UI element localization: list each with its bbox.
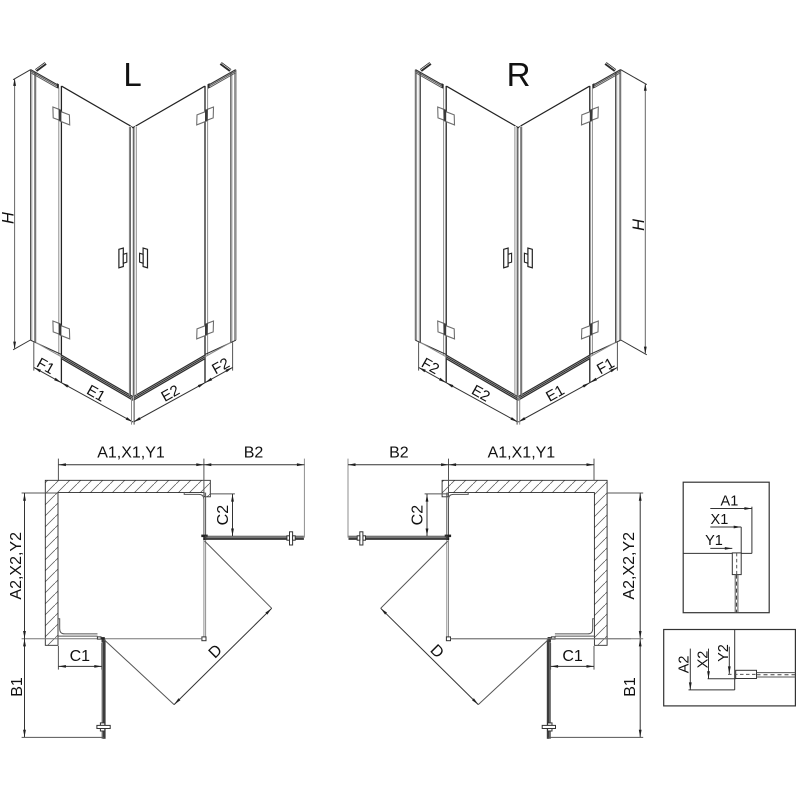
svg-text:A1,X1,Y1: A1,X1,Y1 bbox=[488, 445, 556, 462]
svg-text:A2,X2,Y2: A2,X2,Y2 bbox=[621, 532, 638, 600]
svg-text:A2: A2 bbox=[676, 656, 692, 674]
svg-text:Y1: Y1 bbox=[705, 533, 723, 549]
svg-text:X1: X1 bbox=[711, 512, 729, 528]
svg-text:C1: C1 bbox=[562, 648, 583, 665]
svg-text:R: R bbox=[507, 56, 531, 93]
svg-text:B1: B1 bbox=[9, 677, 26, 697]
svg-text:C2: C2 bbox=[215, 505, 232, 526]
svg-text:X2: X2 bbox=[695, 651, 711, 669]
svg-text:A1,X1,Y1: A1,X1,Y1 bbox=[97, 445, 165, 462]
svg-text:A1: A1 bbox=[721, 493, 739, 509]
svg-text:H: H bbox=[630, 219, 648, 231]
svg-text:C1: C1 bbox=[70, 648, 91, 665]
svg-text:A2,X2,Y2: A2,X2,Y2 bbox=[8, 532, 25, 600]
svg-text:Y2: Y2 bbox=[716, 644, 732, 662]
svg-text:L: L bbox=[123, 56, 141, 93]
svg-text:B1: B1 bbox=[622, 677, 639, 697]
svg-text:H: H bbox=[0, 212, 17, 224]
svg-text:C2: C2 bbox=[409, 505, 426, 526]
svg-text:B2: B2 bbox=[244, 445, 264, 462]
svg-text:B2: B2 bbox=[389, 445, 409, 462]
